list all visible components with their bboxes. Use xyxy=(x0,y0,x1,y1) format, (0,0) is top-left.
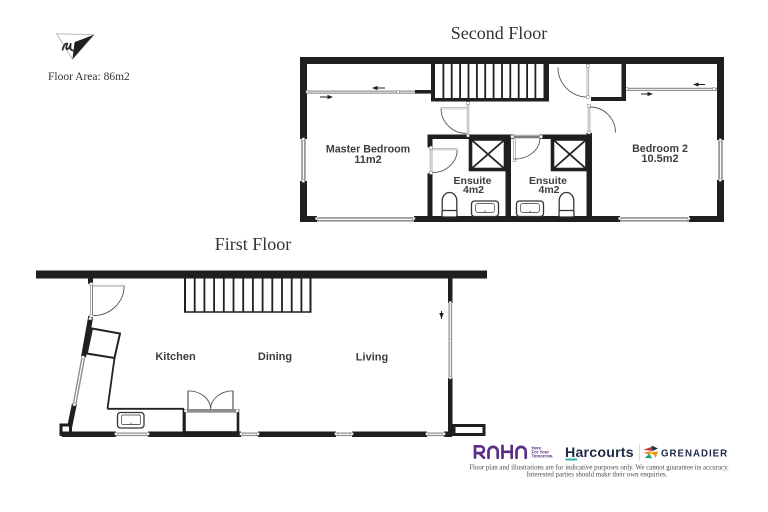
svg-text:Interested parties should make: Interested parties should make their own… xyxy=(527,472,668,479)
svg-text:First Floor: First Floor xyxy=(215,234,292,254)
svg-text:4m2: 4m2 xyxy=(538,184,559,196)
svg-text:11m2: 11m2 xyxy=(354,154,382,166)
svg-text:Tomorrow.: Tomorrow. xyxy=(532,454,554,459)
svg-text:Floor Area: 86m2: Floor Area: 86m2 xyxy=(48,71,130,83)
svg-text:10.5m2: 10.5m2 xyxy=(641,153,678,165)
svg-text:Kitchen: Kitchen xyxy=(155,351,196,363)
svg-text:4m2: 4m2 xyxy=(463,184,484,196)
svg-text:Dining: Dining xyxy=(258,351,292,363)
svg-text:Second Floor: Second Floor xyxy=(451,23,548,43)
svg-text:GRENADIER: GRENADIER xyxy=(661,449,728,460)
svg-text:Living: Living xyxy=(356,352,388,364)
svg-text:Floor plan and illustrations a: Floor plan and illustrations are for ind… xyxy=(469,465,729,472)
